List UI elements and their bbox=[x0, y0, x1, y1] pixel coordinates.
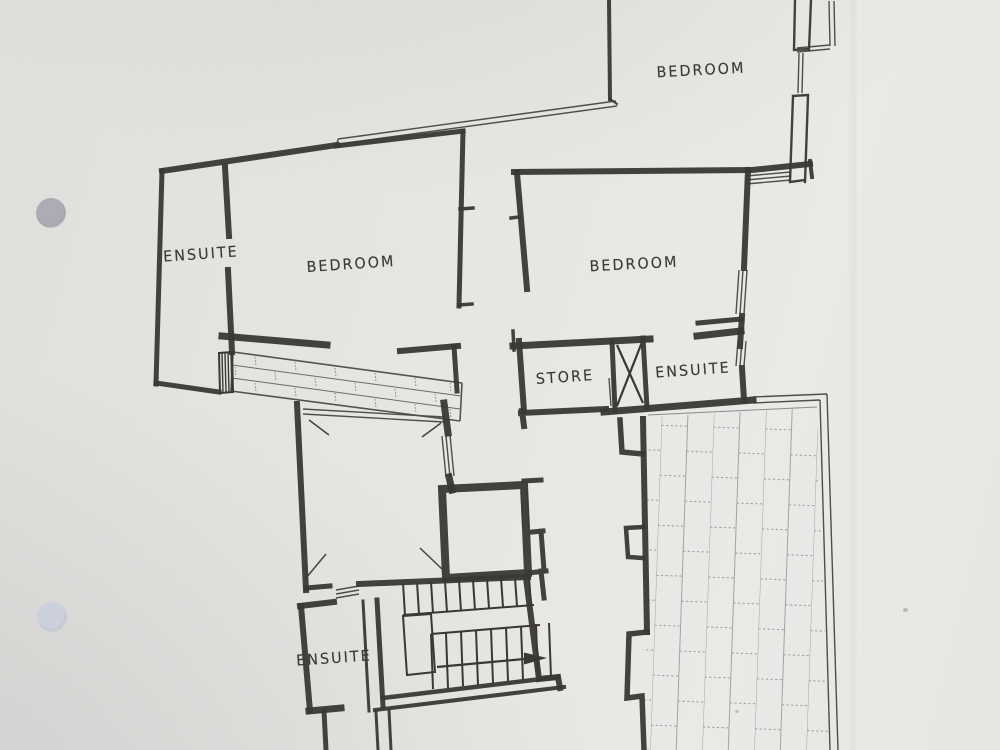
stair-direction-arrow-shaft bbox=[437, 659, 524, 667]
door-threshold-bottom bbox=[336, 586, 359, 598]
window-top-right bbox=[798, 53, 803, 93]
hole-punch-bottom bbox=[37, 602, 67, 632]
paper-speck bbox=[735, 710, 739, 713]
terrace-paving bbox=[641, 394, 838, 750]
window-strip-bedroom bbox=[746, 172, 791, 184]
brick-wall-band bbox=[231, 352, 462, 421]
window-corner-frame bbox=[797, 1, 835, 52]
paper-speck bbox=[903, 608, 908, 612]
shaft-x-cross bbox=[617, 342, 643, 406]
terrace-pilaster bbox=[626, 527, 643, 558]
void-corner-ticks bbox=[306, 420, 442, 578]
hole-punch-top bbox=[36, 198, 66, 228]
lift-shaft-room bbox=[442, 485, 528, 578]
void-top-edge bbox=[303, 409, 444, 422]
stair-core bbox=[403, 614, 435, 675]
scanned-floor-plan-photo: BEDROOM ENSUITE BEDROOM BEDROOM STORE EN… bbox=[0, 0, 1000, 750]
stair-landing-line-lower bbox=[431, 625, 540, 634]
window-bedroom-right bbox=[736, 270, 747, 314]
window-void-right bbox=[442, 435, 454, 477]
stair-landing-line-upper bbox=[403, 605, 534, 615]
paper-crease bbox=[848, 0, 864, 750]
